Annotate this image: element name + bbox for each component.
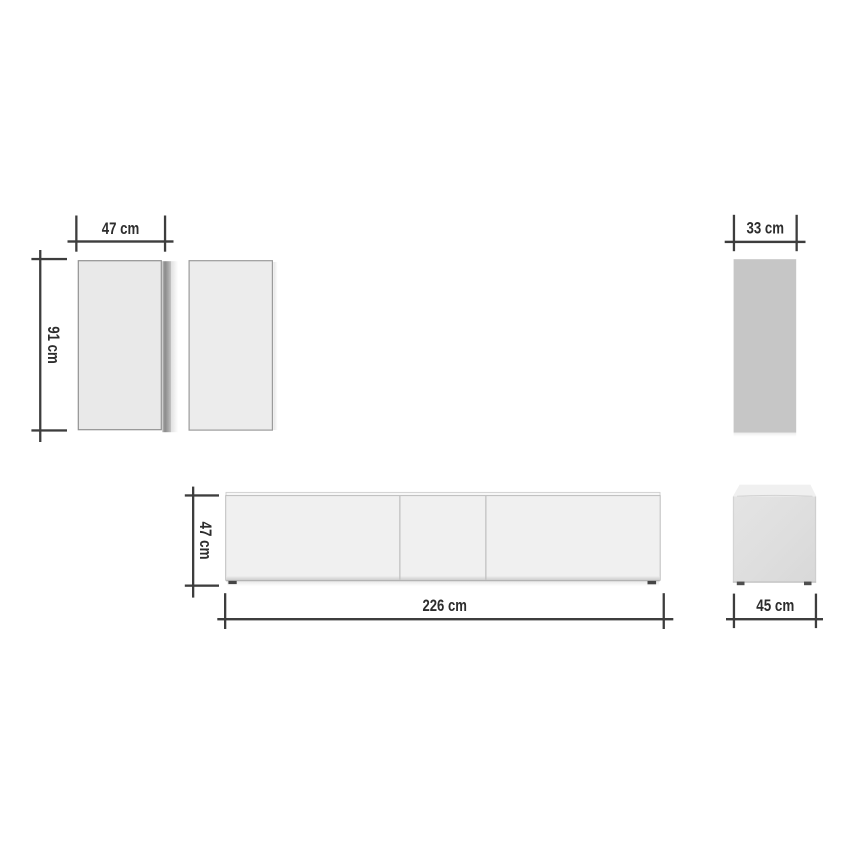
svg-text:47 cm: 47 cm [196,522,215,560]
svg-text:33 cm: 33 cm [747,219,785,238]
svg-text:47 cm: 47 cm [102,219,140,238]
svg-text:226 cm: 226 cm [422,596,467,615]
svg-text:45 cm: 45 cm [756,596,794,615]
svg-text:91 cm: 91 cm [44,326,63,364]
